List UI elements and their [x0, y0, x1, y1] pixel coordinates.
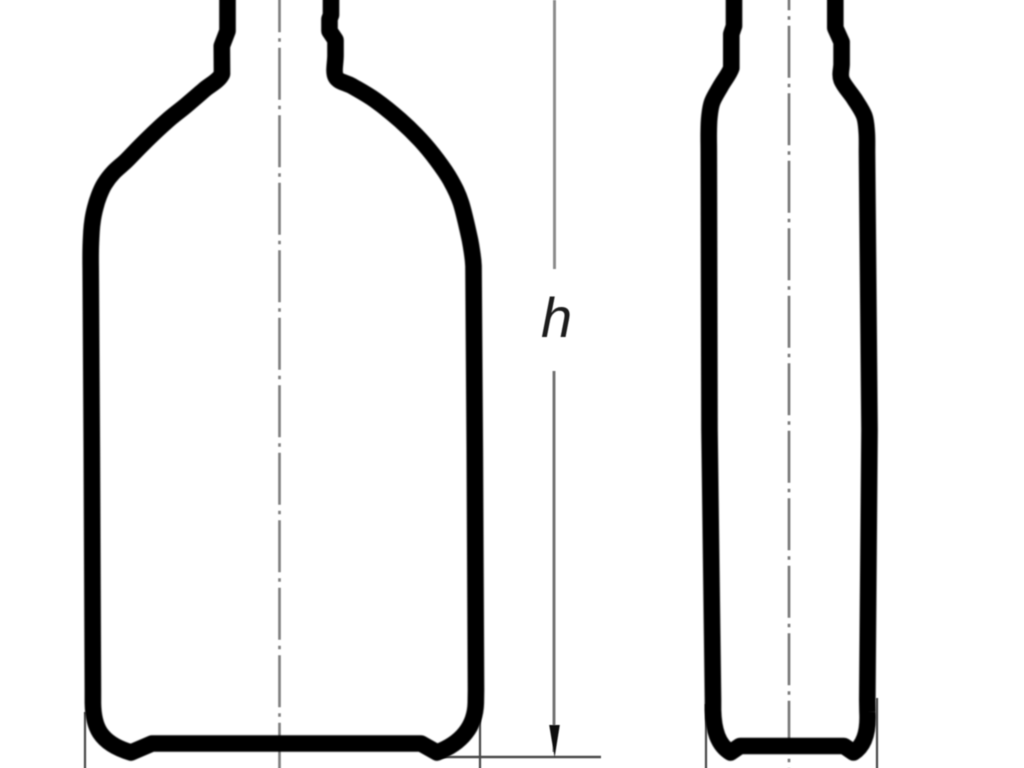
- svg-text:h: h: [541, 286, 572, 349]
